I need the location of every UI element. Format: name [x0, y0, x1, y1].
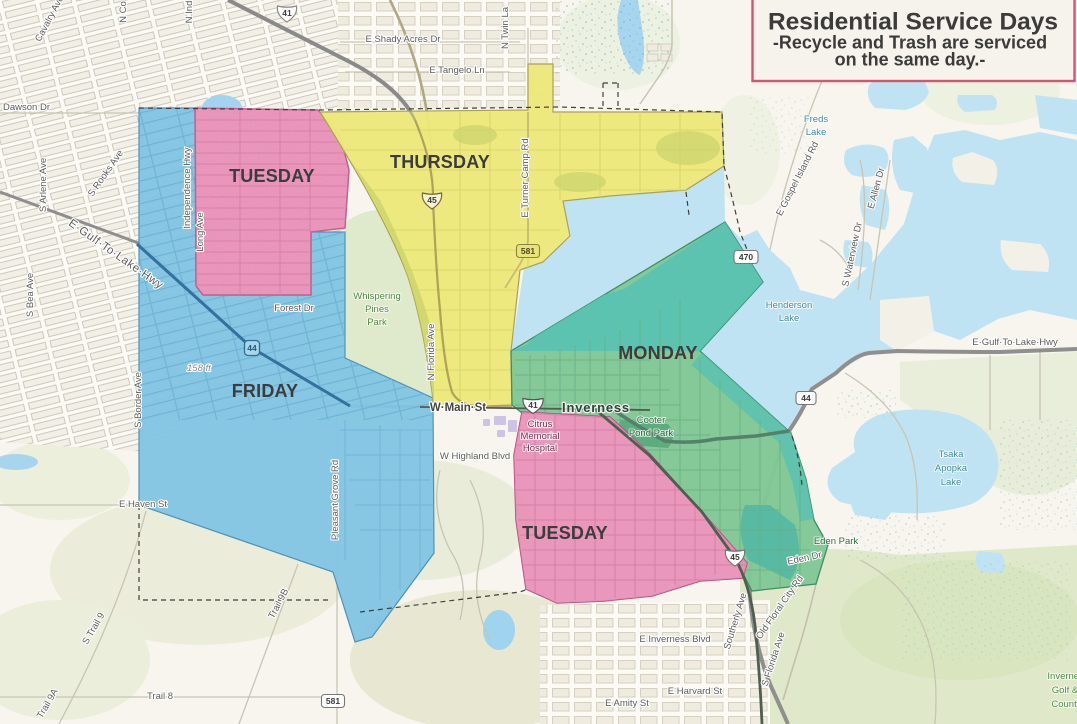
svg-text:TUESDAY: TUESDAY	[229, 166, 315, 186]
svg-text:581: 581	[521, 246, 535, 256]
svg-text:Henderson: Henderson	[766, 300, 812, 311]
svg-text:E Amity St: E Amity St	[605, 698, 649, 709]
svg-text:Lake: Lake	[779, 313, 800, 324]
svg-text:158 ft: 158 ft	[187, 363, 211, 374]
svg-text:Trail 8: Trail 8	[147, 691, 173, 702]
svg-text:44: 44	[247, 343, 257, 353]
svg-text:W·Main·St: W·Main·St	[430, 402, 486, 414]
svg-text:E Turner Camp Rd: E Turner Camp Rd	[520, 138, 531, 217]
svg-text:N Co: N Co	[118, 1, 129, 23]
svg-text:44: 44	[801, 393, 811, 403]
svg-text:E Shady Acres Dr: E Shady Acres Dr	[366, 34, 441, 45]
svg-text:Pleasant Grove Rd: Pleasant Grove Rd	[330, 460, 341, 540]
svg-text:TUESDAY: TUESDAY	[522, 523, 608, 543]
svg-text:Pines: Pines	[365, 304, 389, 315]
svg-text:S Arlene Ave: S Arlene Ave	[38, 158, 49, 212]
svg-text:Golf &: Golf &	[1052, 685, 1077, 696]
svg-text:E Tangelo Ln: E Tangelo Ln	[429, 65, 484, 76]
svg-text:Cooter: Cooter	[637, 415, 666, 426]
svg-text:41: 41	[282, 8, 292, 18]
svg-text:45: 45	[427, 195, 437, 205]
svg-text:Inverness: Inverness	[562, 400, 630, 415]
svg-text:E Inverness Blvd: E Inverness Blvd	[639, 634, 710, 645]
svg-text:THURSDAY: THURSDAY	[390, 152, 490, 172]
svg-text:N Twin La: N Twin La	[500, 6, 511, 49]
svg-text:Lake: Lake	[806, 127, 827, 138]
svg-text:N Ind: N Ind	[184, 1, 195, 24]
svg-text:Independence Hwy: Independence Hwy	[182, 147, 193, 229]
svg-text:Residential Service Days: Residential Service Days	[768, 9, 1058, 36]
svg-text:FRIDAY: FRIDAY	[232, 381, 299, 401]
svg-text:Citrus: Citrus	[528, 419, 553, 430]
svg-text:Freds: Freds	[804, 114, 829, 125]
svg-text:Long Ave: Long Ave	[195, 212, 206, 251]
svg-text:Whispering: Whispering	[353, 291, 401, 302]
svg-text:MONDAY: MONDAY	[618, 343, 698, 363]
svg-text:N Florida Ave: N Florida Ave	[426, 324, 437, 381]
svg-text:E Harvard St: E Harvard St	[668, 686, 723, 697]
svg-text:470: 470	[739, 252, 753, 262]
svg-text:Hospital: Hospital	[523, 443, 557, 454]
svg-text:Inverness: Inverness	[1047, 671, 1077, 682]
svg-text:Park: Park	[367, 317, 387, 328]
svg-text:Dawson Dr: Dawson Dr	[3, 102, 50, 113]
svg-text:Tsaka: Tsaka	[939, 449, 965, 460]
svg-text:Apopka: Apopka	[935, 463, 968, 474]
svg-text:E·Gulf·To·Lake·Hwy: E·Gulf·To·Lake·Hwy	[972, 337, 1058, 348]
svg-text:Pond Park: Pond Park	[629, 428, 674, 439]
svg-text:E Haven St: E Haven St	[119, 499, 167, 510]
svg-text:Eden Park: Eden Park	[814, 536, 859, 547]
svg-text:45: 45	[730, 552, 740, 562]
svg-text:Country: Country	[1051, 699, 1077, 710]
svg-text:S Border Ave: S Border Ave	[133, 372, 144, 428]
svg-text:Lake: Lake	[941, 477, 962, 488]
svg-text:Memorial: Memorial	[520, 431, 559, 442]
svg-text:W Highland Blvd: W Highland Blvd	[440, 451, 510, 462]
svg-text:Forest Dr: Forest Dr	[274, 303, 314, 314]
svg-text:on the same day.-: on the same day.-	[835, 50, 986, 70]
svg-text:S Bea Ave: S Bea Ave	[25, 273, 36, 317]
svg-text:581: 581	[326, 696, 340, 706]
svg-text:41: 41	[528, 400, 538, 410]
